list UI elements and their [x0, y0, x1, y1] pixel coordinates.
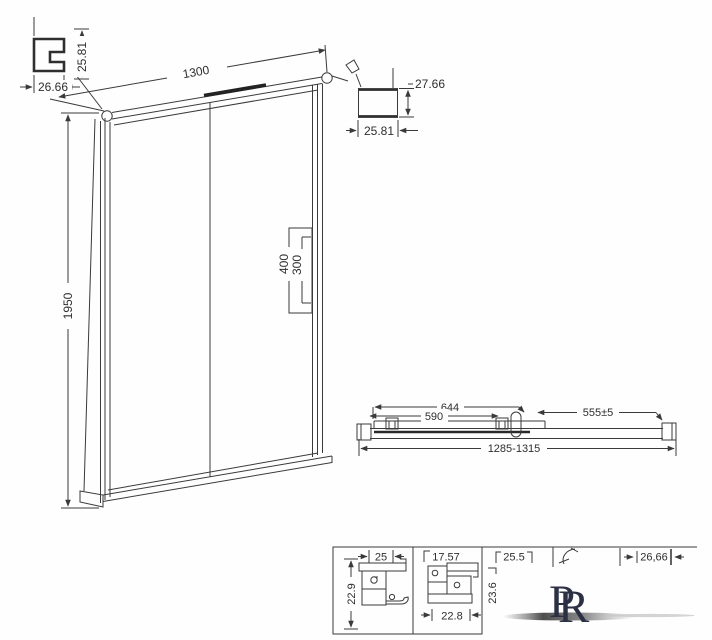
drawing-svg: 26.66 25.81 27.66 25.81 1300 — [0, 0, 712, 640]
plan-view: 644 590 555±5 1285-1315 — [357, 400, 676, 456]
top-rail-profile-detail: 27.66 25.81 — [332, 60, 445, 138]
plan-wall-profile-right — [662, 423, 676, 440]
dim-section1-height: 22.9 — [346, 583, 358, 604]
frame-profile-section-1 — [359, 559, 408, 605]
logo-letter-r: R — [558, 581, 590, 633]
plan-roller-bracket — [386, 418, 398, 429]
dim-rail-profile-height: 27.66 — [415, 77, 445, 91]
dim-plan-overall-range: 1285-1315 — [488, 443, 541, 455]
dim-section3-height: 23.6 — [487, 582, 499, 603]
left-profile-foot — [80, 491, 103, 507]
dim-wall-profile-height: 25.81 — [75, 42, 89, 72]
dim-handle-grip-height: 300 — [290, 255, 304, 275]
glass-hook-shape — [346, 60, 359, 73]
dim-section3-width: 25.5 — [503, 552, 524, 564]
profile-sections-strip: 25 22.9 17.57 22.8 25.5 23.6 — [333, 547, 697, 634]
dim-plan-glass-width: 590 — [425, 411, 443, 423]
left-frame-profile — [101, 118, 111, 503]
plan-wall-profile-left — [357, 424, 371, 440]
technical-drawing-canvas: 26.66 25.81 27.66 25.81 1300 — [0, 0, 712, 640]
rail-section-shape — [358, 90, 398, 117]
dim-section2-bottom-width: 22.8 — [441, 611, 462, 623]
dim-section2-width: 17.57 — [432, 552, 460, 564]
dim-section4-width: 26,66 — [640, 552, 668, 564]
wall-profile-section-shape — [34, 39, 64, 71]
dim-door-width: 1300 — [182, 63, 211, 81]
plan-sliding-panel — [374, 421, 545, 429]
dim-section1-width: 25 — [375, 552, 387, 564]
roller-cap-left — [102, 111, 112, 121]
dim-rail-profile-width: 25.81 — [364, 124, 394, 138]
leader-line — [332, 76, 348, 81]
dim-door-height: 1950 — [61, 292, 75, 319]
dim-plan-side-section: 555±5 — [583, 407, 614, 419]
plan-roller-bracket — [496, 418, 508, 429]
roller-cap-right — [322, 73, 332, 83]
brand-logo: P R — [502, 576, 695, 633]
gasket-profile-icon — [559, 548, 578, 564]
door-elevation: 1300 400 300 1950 — [50, 45, 332, 508]
frame-profile-section-2 — [428, 563, 478, 603]
dim-handle-plate-height: 400 — [277, 254, 291, 274]
right-stile — [313, 84, 323, 458]
top-track-bar — [204, 85, 266, 96]
wall-profile-detail: 26.66 25.81 — [20, 17, 102, 109]
dim-wall-profile-width: 26.66 — [38, 80, 68, 94]
bottom-rail — [103, 456, 332, 495]
